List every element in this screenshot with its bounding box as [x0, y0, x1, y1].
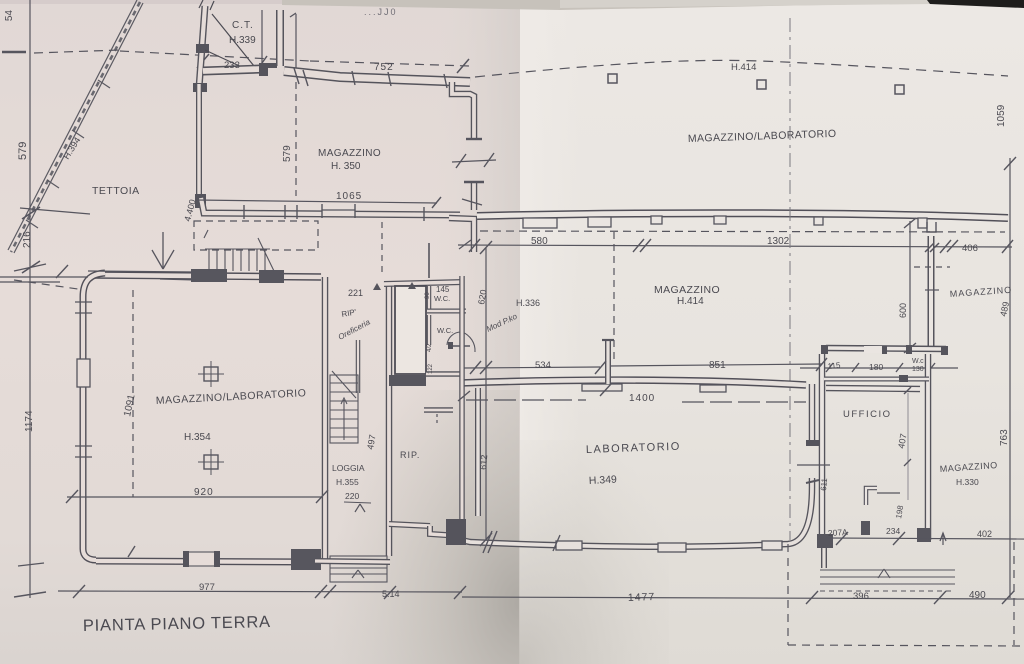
svg-text:H. 350: H. 350	[331, 161, 361, 172]
svg-text:1302: 1302	[767, 236, 790, 247]
svg-text:W.C.: W.C.	[437, 326, 453, 335]
svg-text:H.330: H.330	[956, 477, 979, 487]
svg-text:216: 216	[22, 231, 33, 248]
svg-text:145: 145	[436, 285, 450, 294]
svg-text:763: 763	[999, 429, 1010, 446]
svg-text:920: 920	[194, 487, 214, 498]
svg-text:130: 130	[912, 366, 924, 373]
svg-text:H.354: H.354	[184, 432, 211, 443]
svg-text:H.336: H.336	[516, 298, 540, 308]
svg-text:752: 752	[374, 62, 394, 73]
svg-text:TETTOIA: TETTOIA	[92, 185, 140, 197]
svg-text:MAGAZZINO: MAGAZZINO	[318, 148, 381, 159]
svg-text:H.355: H.355	[336, 477, 359, 487]
svg-text:UFFICIO: UFFICIO	[843, 409, 892, 420]
svg-text:977: 977	[199, 582, 215, 593]
svg-text:W.C.: W.C.	[434, 294, 450, 303]
svg-text:600: 600	[898, 303, 908, 318]
svg-text:H.349: H.349	[589, 474, 618, 487]
svg-text:H.414: H.414	[731, 62, 756, 73]
svg-text:H.339: H.339	[229, 35, 256, 46]
svg-text:...JJ0: ...JJ0	[364, 7, 398, 17]
svg-text:90: 90	[425, 292, 431, 299]
svg-text:1065: 1065	[336, 191, 362, 202]
svg-text:579: 579	[282, 145, 293, 162]
svg-text:534: 534	[535, 360, 551, 371]
svg-text:MAGAZZINO: MAGAZZINO	[654, 284, 720, 296]
svg-text:1477: 1477	[628, 591, 656, 604]
svg-text:4/2: 4/2	[427, 343, 433, 352]
svg-text:LOGGIA: LOGGIA	[332, 463, 365, 473]
svg-text:H.414: H.414	[677, 296, 704, 307]
svg-text:579: 579	[17, 142, 29, 160]
svg-text:580: 580	[531, 236, 548, 247]
svg-text:1400: 1400	[629, 393, 655, 404]
svg-text:402: 402	[977, 529, 992, 539]
svg-text:611: 611	[819, 477, 829, 491]
svg-text:221: 221	[348, 288, 363, 298]
svg-text:W.c: W.c	[912, 358, 924, 365]
svg-text:RIP.: RIP.	[400, 450, 420, 460]
svg-text:612: 612	[478, 454, 489, 470]
svg-text:233: 233	[224, 60, 240, 71]
svg-text:122: 122	[428, 363, 434, 374]
svg-text:5.14: 5.14	[382, 589, 400, 599]
svg-text:207A: 207A	[828, 527, 849, 538]
svg-text:1174: 1174	[24, 410, 35, 432]
svg-text:851: 851	[709, 360, 726, 371]
svg-text:234: 234	[886, 526, 900, 536]
svg-text:C.T.: C.T.	[232, 20, 254, 31]
svg-text:220: 220	[345, 491, 359, 501]
svg-text:396: 396	[853, 591, 869, 602]
svg-text:180: 180	[869, 362, 883, 372]
svg-text:115: 115	[827, 361, 841, 371]
svg-text:406: 406	[962, 243, 978, 254]
svg-text:1059: 1059	[996, 104, 1007, 127]
svg-text:490: 490	[969, 590, 986, 601]
svg-text:54: 54	[4, 10, 15, 22]
